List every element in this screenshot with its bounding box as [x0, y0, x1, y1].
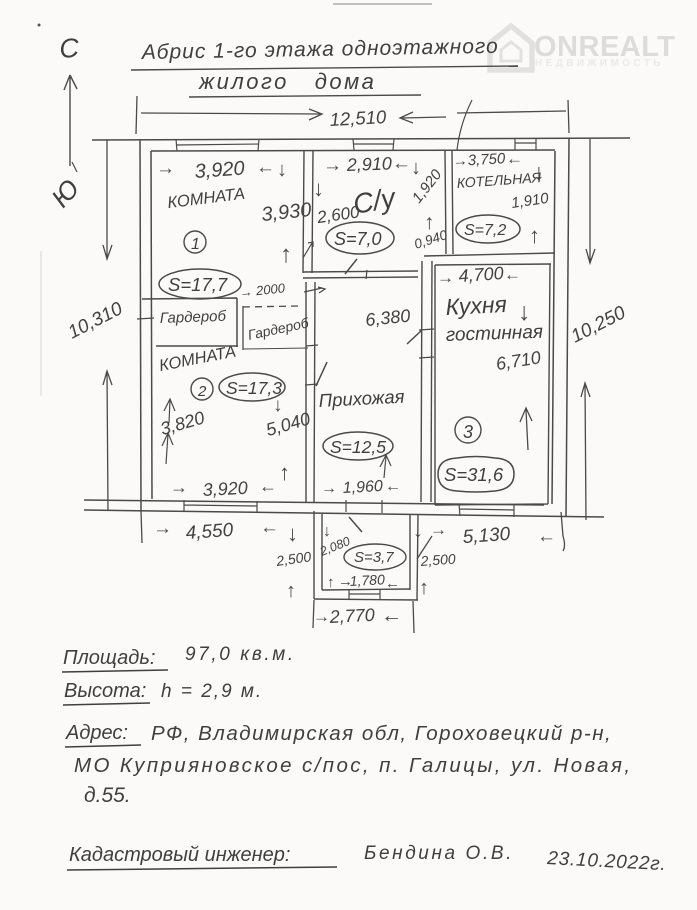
svg-text:S=17,3: S=17,3 [226, 378, 282, 398]
svg-text:↓: ↓ [323, 523, 331, 540]
svg-text:→: → [321, 480, 337, 497]
svg-text:←: ← [385, 575, 400, 592]
svg-text:→: → [437, 268, 454, 287]
svg-text:1,780: 1,780 [349, 571, 385, 589]
svg-text:S=3,7: S=3,7 [354, 549, 394, 566]
svg-text:←: ← [504, 265, 521, 284]
svg-text:↑: ↑ [279, 460, 290, 485]
svg-text:Кадастровый инженер:: Кадастровый инженер: [69, 844, 290, 866]
svg-text:97,0 кв.м.: 97,0 кв.м. [185, 644, 296, 665]
svg-text:3,920: 3,920 [202, 478, 248, 500]
svg-text:→: → [430, 520, 447, 539]
svg-text:S=7,2: S=7,2 [464, 222, 506, 239]
svg-text:S=12,5: S=12,5 [330, 437, 386, 457]
svg-text:12,510: 12,510 [329, 106, 387, 130]
svg-text:←: ← [260, 517, 279, 538]
svg-text:1,960: 1,960 [342, 478, 383, 497]
svg-text:←: ← [537, 526, 556, 547]
svg-text:h = 2,9 м.: h = 2,9 м. [161, 681, 263, 702]
svg-text:Кухня: Кухня [445, 291, 508, 320]
svg-text:5,130: 5,130 [462, 524, 511, 548]
svg-text:д.55.: д.55. [84, 784, 131, 807]
svg-text:Бендина О.В.: Бендина О.В. [364, 843, 514, 864]
svg-text:←: ← [259, 476, 277, 496]
svg-text:жилого дома: жилого дома [198, 69, 376, 94]
svg-text:→: → [323, 155, 342, 176]
svg-text:МО Куприяновское с/пос, п. Гал: МО Куприяновское с/пос, п. Галицы, ул. Н… [74, 754, 632, 777]
svg-text:2,770: 2,770 [328, 605, 375, 627]
svg-text:→3,750: →3,750 [452, 150, 506, 170]
svg-text:↑: ↑ [529, 223, 540, 248]
svg-text:3: 3 [463, 422, 473, 442]
svg-text:↓: ↓ [413, 520, 423, 542]
svg-text:1: 1 [191, 236, 200, 253]
svg-text:←: ← [392, 153, 411, 174]
svg-text:←: ← [385, 478, 401, 495]
svg-text:С: С [58, 33, 80, 64]
svg-text:гостинная: гостинная [445, 322, 543, 346]
svg-text:3,920: 3,920 [194, 158, 245, 183]
svg-text:↑: ↑ [419, 577, 429, 599]
svg-text:↑: ↑ [327, 574, 335, 591]
svg-text:2,910: 2,910 [345, 153, 392, 175]
svg-text:←: ← [256, 157, 275, 178]
svg-text:→: → [313, 607, 330, 626]
svg-text:↓: ↓ [277, 159, 287, 181]
svg-text:Высота:: Высота: [64, 680, 146, 702]
svg-text:→: → [170, 477, 188, 497]
svg-text:Площадь:: Площадь: [63, 647, 155, 669]
svg-text:↓: ↓ [411, 157, 421, 179]
svg-text:→: → [153, 518, 172, 539]
svg-text:2,500: 2,500 [419, 551, 456, 569]
svg-text:↓: ↓ [313, 176, 324, 201]
svg-text:НЕДВИЖИМОСТЬ: НЕДВИЖИМОСТЬ [535, 58, 664, 69]
svg-text:Адрес:: Адрес: [65, 722, 128, 744]
svg-text:↓: ↓ [533, 159, 545, 185]
svg-text:→: → [156, 158, 175, 179]
svg-text:S=31,6: S=31,6 [444, 464, 504, 485]
svg-text:4,550: 4,550 [185, 520, 234, 544]
svg-text:S=17,7: S=17,7 [168, 274, 228, 295]
svg-text:↑: ↑ [286, 580, 296, 602]
svg-text:2: 2 [197, 383, 207, 400]
svg-text:←: ← [381, 604, 402, 627]
svg-text:4,700: 4,700 [458, 263, 504, 286]
svg-text:↓: ↓ [273, 395, 283, 416]
svg-text:←: ← [506, 149, 523, 168]
svg-text:S=7,0: S=7,0 [334, 229, 382, 249]
svg-text:РФ, Владимирская обл, Горохове: РФ, Владимирская обл, Гороховецкий р-н, [151, 722, 612, 745]
svg-text:Гардероб: Гардероб [160, 308, 227, 327]
svg-text:↓: ↓ [287, 521, 298, 546]
svg-text:↑: ↑ [280, 241, 292, 268]
svg-text:Прихожая: Прихожая [318, 386, 405, 411]
